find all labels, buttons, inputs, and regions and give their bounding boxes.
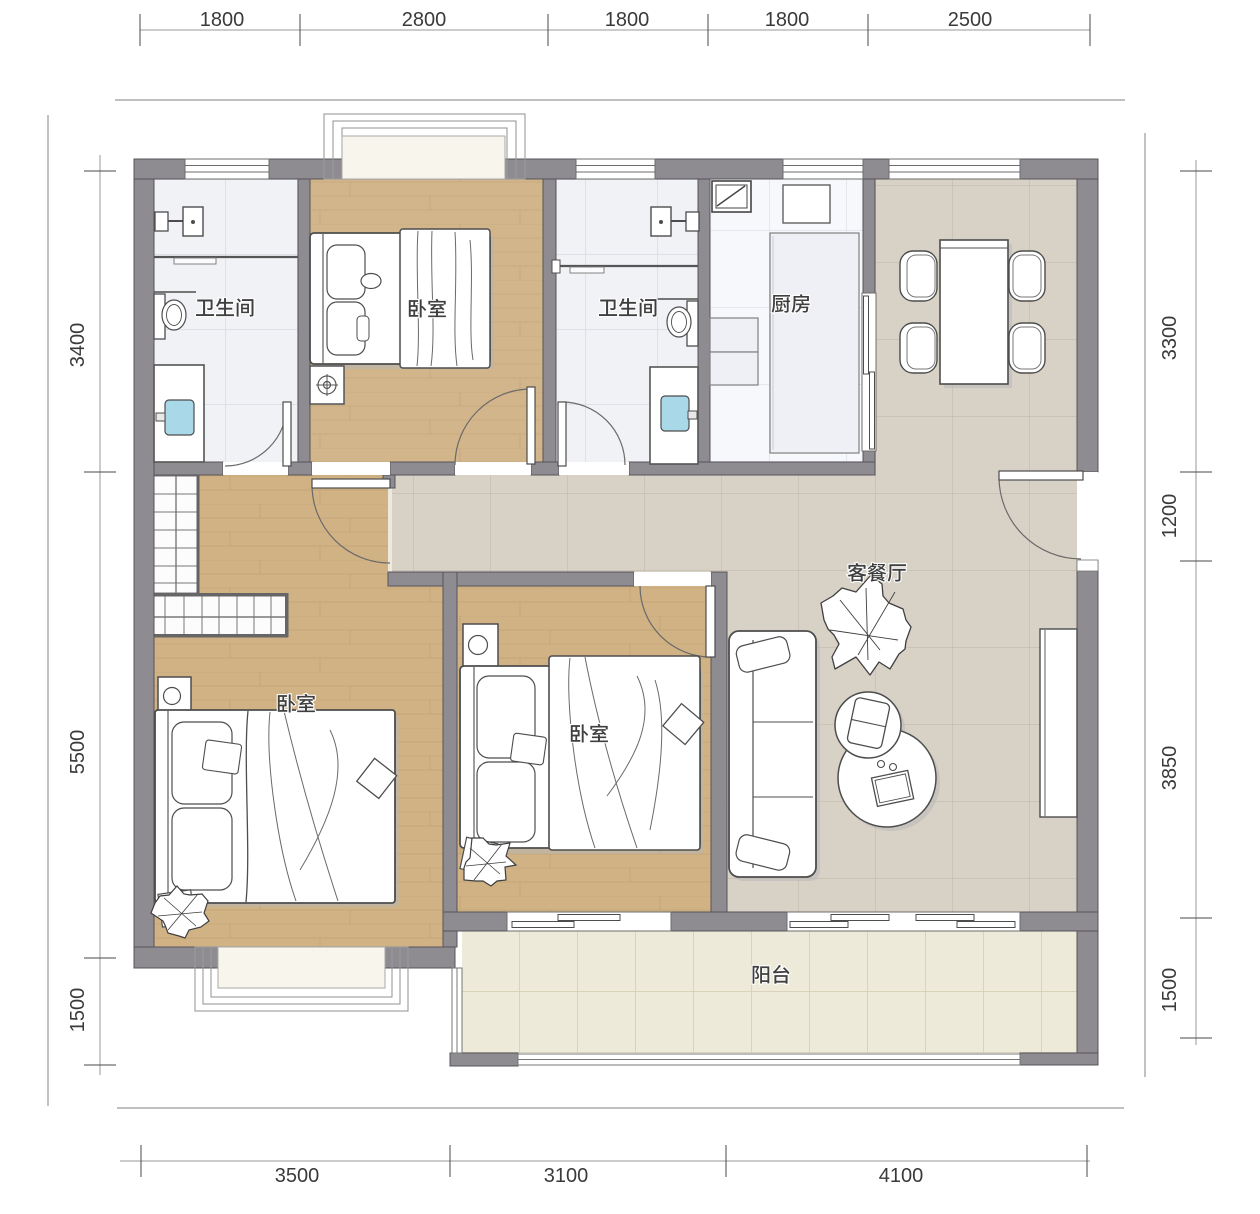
svg-text:2800: 2800	[402, 9, 447, 31]
svg-text:3400: 3400	[67, 323, 89, 368]
svg-text:1500: 1500	[67, 988, 89, 1033]
svg-text:5500: 5500	[67, 730, 89, 775]
svg-text:3500: 3500	[275, 1165, 320, 1187]
svg-text:3100: 3100	[544, 1165, 589, 1187]
svg-text:3300: 3300	[1159, 316, 1181, 361]
svg-text:1200: 1200	[1159, 494, 1181, 539]
svg-text:1500: 1500	[1159, 968, 1181, 1013]
svg-text:4100: 4100	[879, 1165, 924, 1187]
svg-text:3850: 3850	[1159, 746, 1181, 791]
svg-text:1800: 1800	[605, 9, 650, 31]
svg-text:1800: 1800	[765, 9, 810, 31]
svg-text:1800: 1800	[200, 9, 245, 31]
svg-text:2500: 2500	[948, 9, 993, 31]
